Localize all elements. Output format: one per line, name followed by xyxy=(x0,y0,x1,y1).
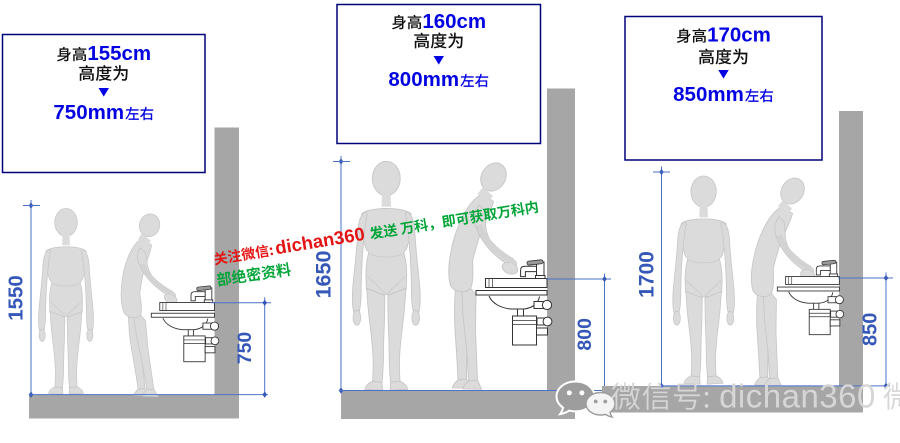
svg-text:160cm: 160cm xyxy=(422,10,486,33)
svg-text:155cm: 155cm xyxy=(87,42,151,65)
svg-text:1550: 1550 xyxy=(5,275,28,321)
svg-text:750mm: 750mm xyxy=(53,101,124,124)
svg-text:750: 750 xyxy=(234,332,256,365)
svg-text:850: 850 xyxy=(860,313,882,346)
svg-text:1650: 1650 xyxy=(312,251,336,299)
svg-text:170cm: 170cm xyxy=(707,24,771,47)
svg-text:800mm: 800mm xyxy=(388,68,459,91)
svg-text:800: 800 xyxy=(574,318,596,351)
svg-text:1700: 1700 xyxy=(636,251,659,298)
svg-text:850mm: 850mm xyxy=(673,83,744,106)
svg-text:dichan360: dichan360 xyxy=(719,378,876,415)
